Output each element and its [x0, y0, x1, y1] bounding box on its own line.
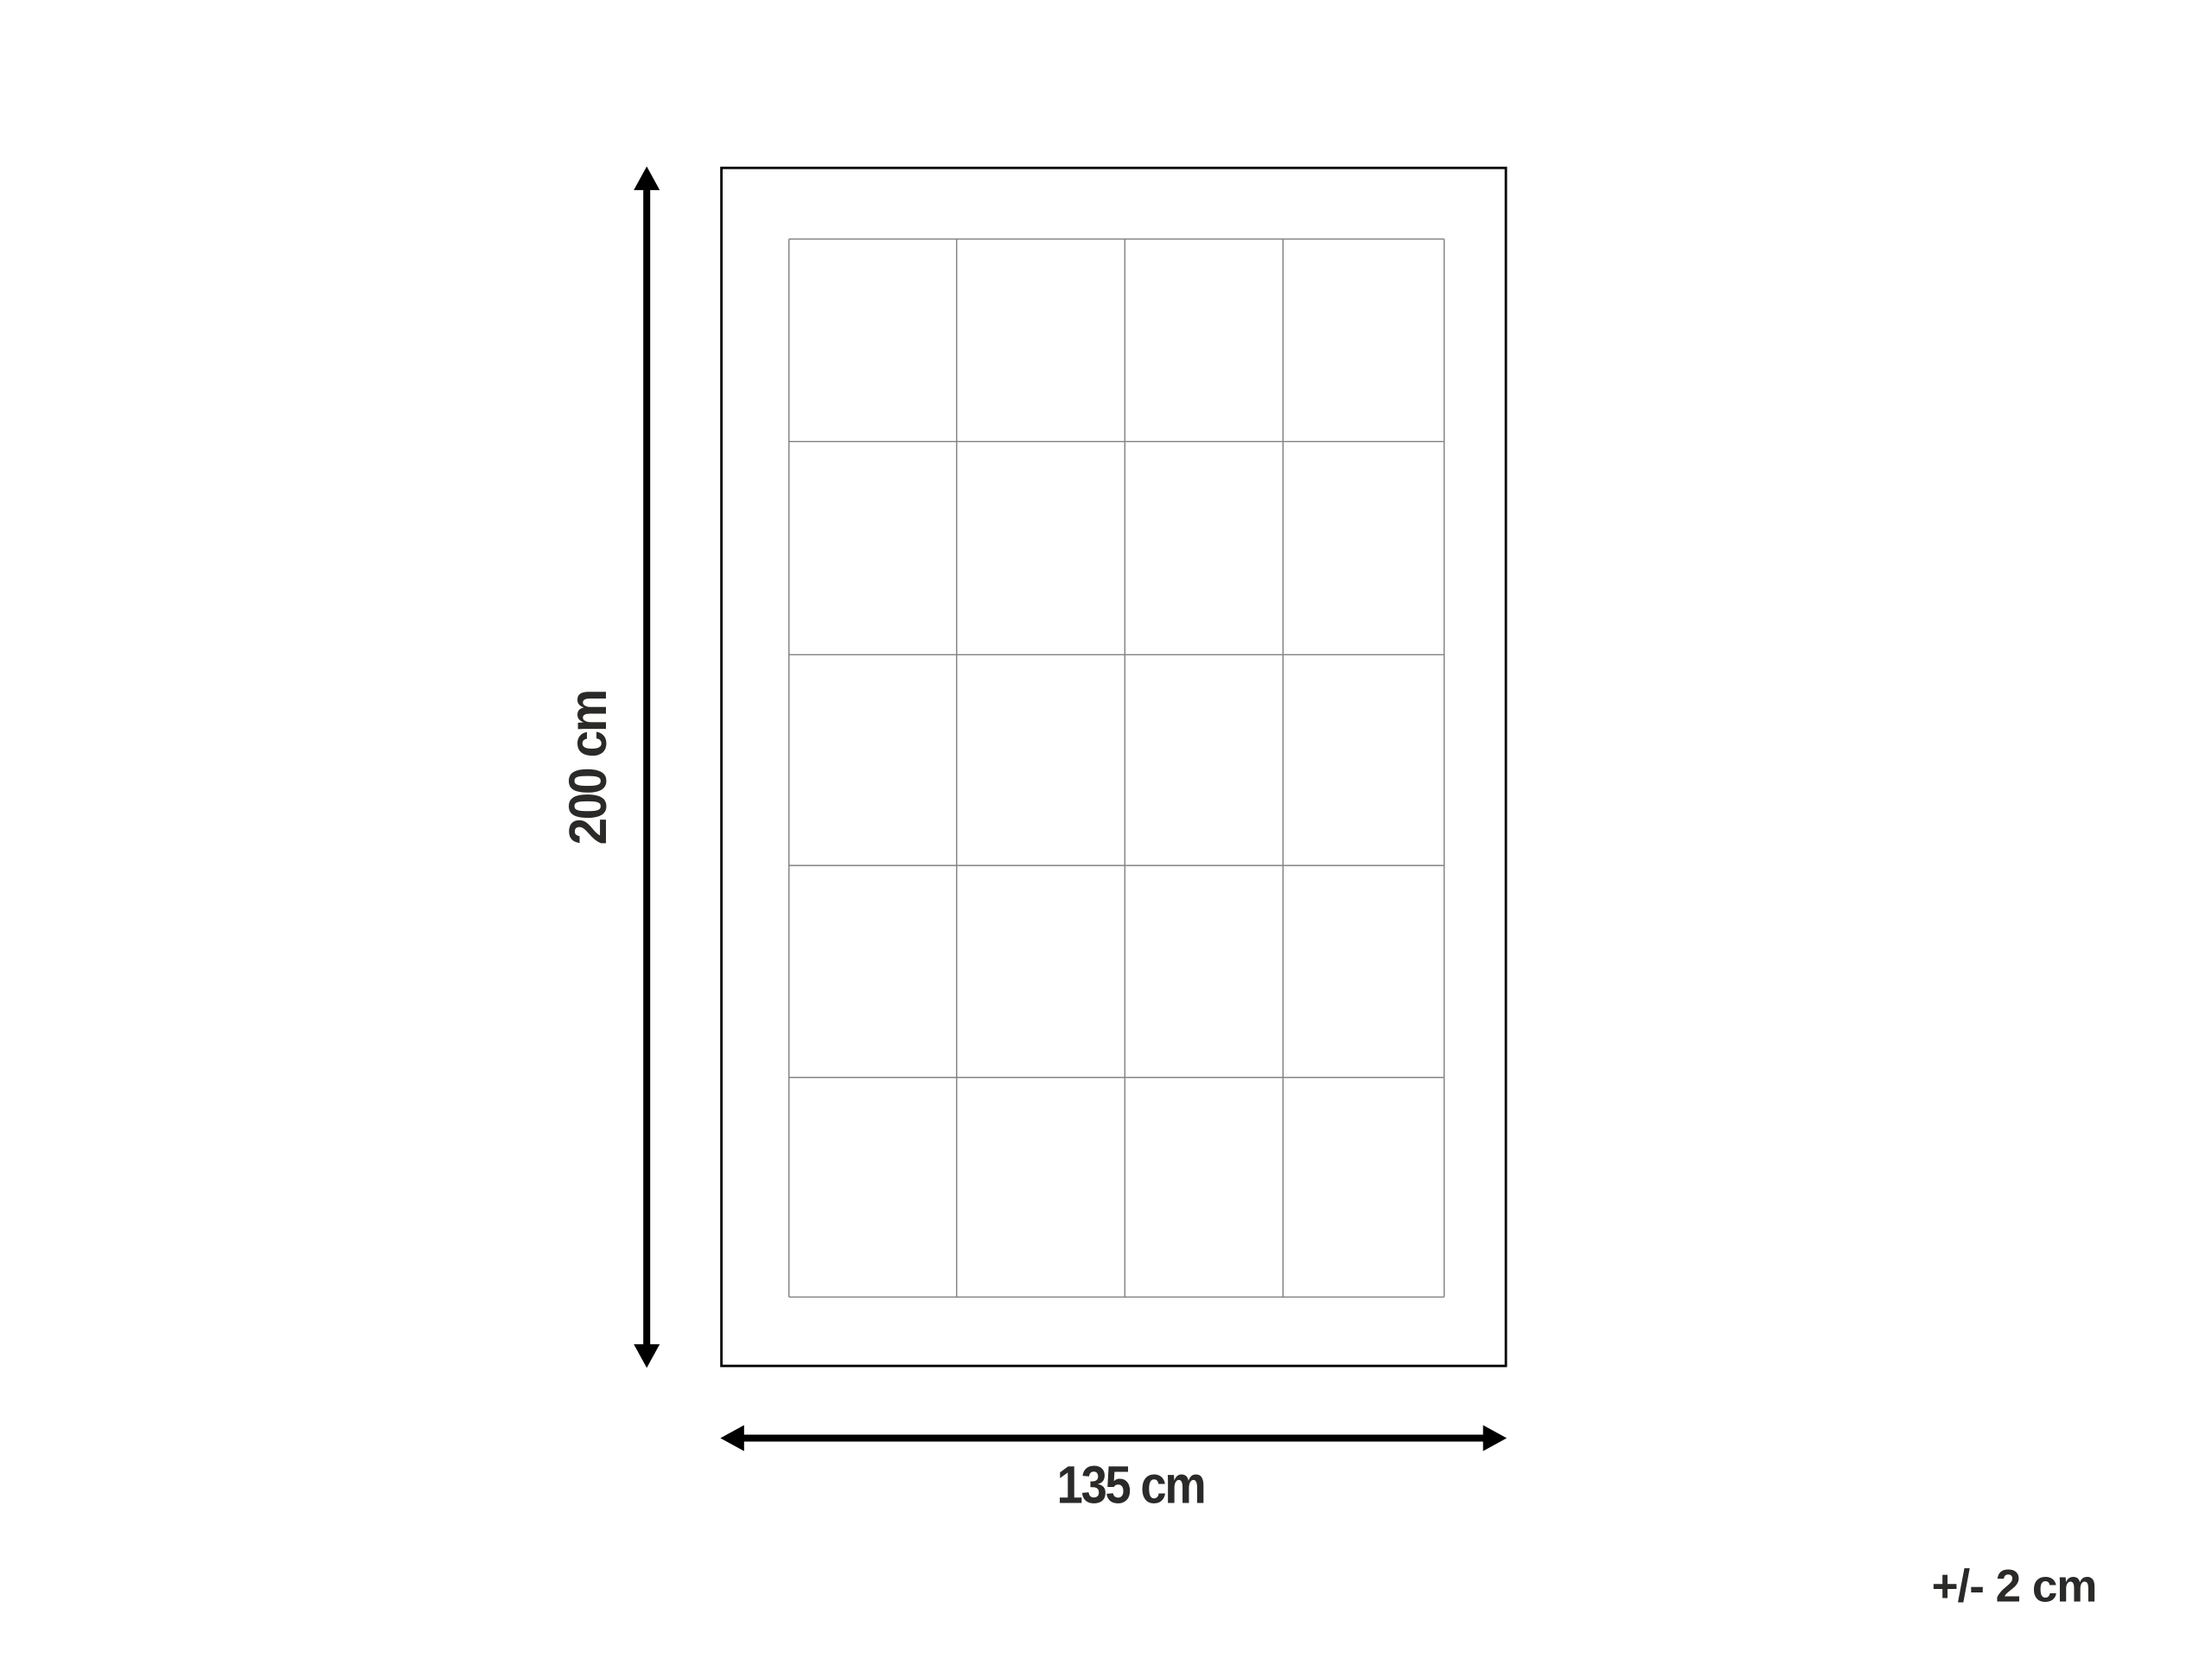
svg-text:135 cm: 135 cm — [1057, 1457, 1205, 1515]
svg-text:200 cm: 200 cm — [559, 691, 617, 845]
svg-text:+/- 2 cm: +/- 2 cm — [1932, 1561, 2097, 1612]
